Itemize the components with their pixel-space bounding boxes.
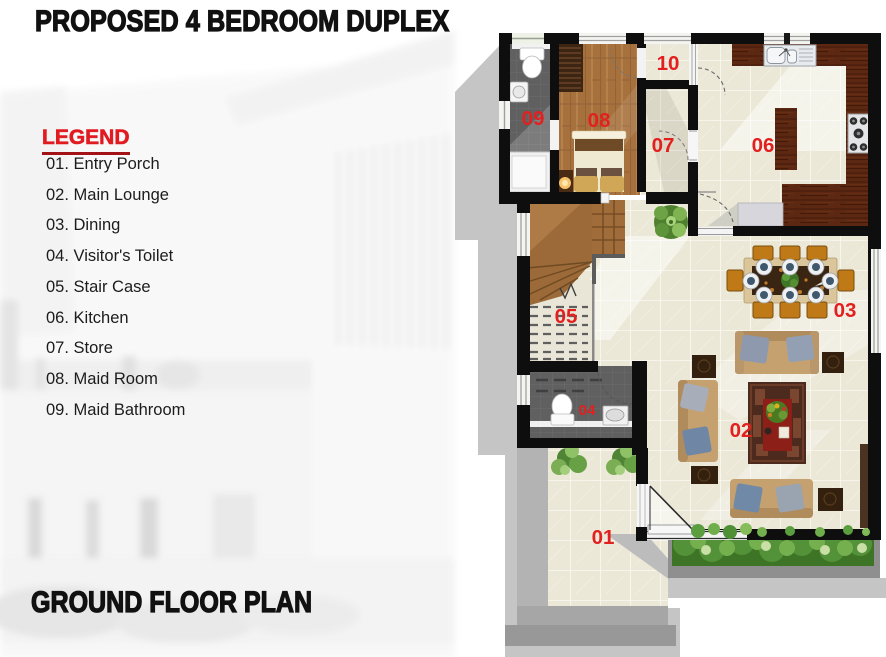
svg-text:04: 04 — [579, 402, 596, 419]
svg-text:10: 10 — [657, 52, 680, 75]
svg-text:09: 09 — [522, 107, 545, 130]
svg-text:01: 01 — [592, 526, 615, 549]
svg-text:06: 06 — [752, 134, 775, 157]
svg-text:03: 03 — [834, 299, 857, 322]
svg-text:07: 07 — [652, 134, 675, 157]
svg-text:08: 08 — [588, 109, 611, 132]
svg-text:05: 05 — [555, 305, 578, 328]
svg-text:02: 02 — [730, 419, 753, 442]
